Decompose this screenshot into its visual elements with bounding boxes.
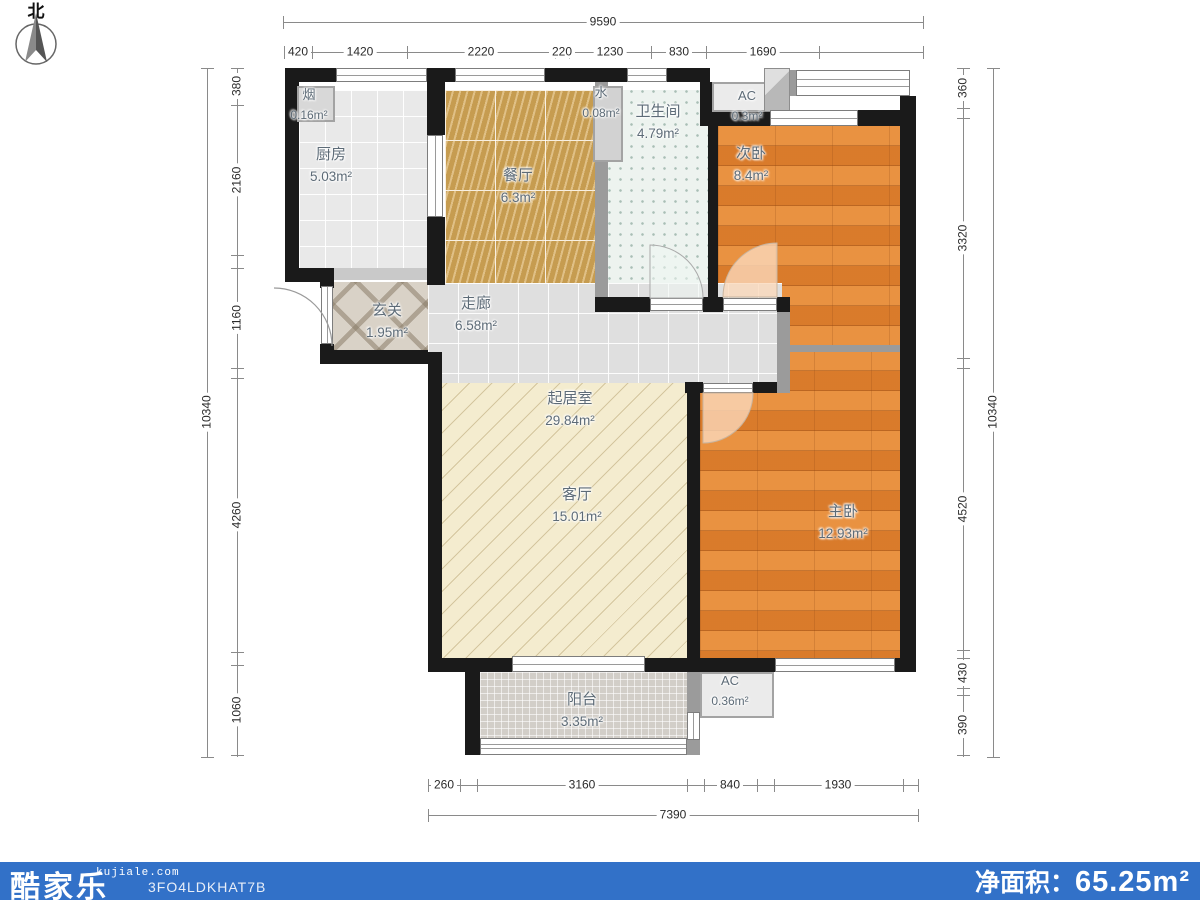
dim-label: 830 bbox=[666, 46, 692, 59]
dim-tick bbox=[231, 368, 244, 369]
dim-label: 4520 bbox=[957, 493, 970, 526]
dim-tick bbox=[957, 650, 970, 651]
dim-tick bbox=[987, 68, 1000, 69]
dim-tick bbox=[428, 809, 429, 822]
dim-tick bbox=[957, 755, 970, 756]
dim-label: 2160 bbox=[231, 164, 244, 197]
dim-tick bbox=[428, 779, 429, 792]
net-area-label: 净面积： bbox=[975, 863, 1075, 899]
dim-line bbox=[963, 68, 964, 757]
dim-tick bbox=[957, 108, 970, 109]
dim-label: 420 bbox=[285, 46, 311, 59]
dim-tick bbox=[687, 779, 688, 792]
dim-tick bbox=[957, 695, 970, 696]
dim-label: 1060 bbox=[231, 694, 244, 727]
dim-label: 360 bbox=[957, 75, 970, 101]
dim-label: 840 bbox=[717, 779, 743, 792]
dim-label: 10340 bbox=[987, 392, 1000, 431]
kujiale-logo: 酷家乐 bbox=[10, 862, 109, 900]
dim-tick bbox=[231, 68, 244, 69]
dim-tick bbox=[231, 378, 244, 379]
dim-tick bbox=[231, 755, 244, 756]
dim-label: 3320 bbox=[957, 222, 970, 255]
dim-tick bbox=[706, 46, 707, 59]
dim-label: 9590 bbox=[587, 16, 620, 29]
dim-tick bbox=[651, 46, 652, 59]
dim-label: 1930 bbox=[822, 779, 855, 792]
dim-tick bbox=[957, 68, 970, 69]
dim-tick bbox=[957, 688, 970, 689]
dim-label: 1160 bbox=[231, 302, 244, 334]
dim-tick bbox=[774, 779, 775, 792]
dim-tick bbox=[704, 779, 705, 792]
dim-tick bbox=[231, 268, 244, 269]
dim-tick bbox=[903, 779, 904, 792]
dim-label: 220 bbox=[549, 46, 575, 59]
dim-tick bbox=[231, 665, 244, 666]
dim-label: 390 bbox=[957, 712, 970, 738]
dim-tick bbox=[819, 46, 820, 59]
dim-tick bbox=[923, 16, 924, 29]
dim-tick bbox=[923, 46, 924, 59]
plan-code: 3FO4LDKHAT7B bbox=[148, 879, 266, 895]
floorplan-page: 北 bbox=[0, 0, 1200, 900]
dim-label: 10340 bbox=[201, 392, 214, 431]
footer-bar: 酷家乐 kujiale.com 3FO4LDKHAT7B 净面积： 65.25m… bbox=[0, 862, 1200, 900]
dim-label: 7390 bbox=[657, 809, 690, 822]
kujiale-domain: kujiale.com bbox=[96, 867, 180, 879]
dim-tick bbox=[957, 118, 970, 119]
dim-tick bbox=[201, 68, 214, 69]
dim-tick bbox=[460, 779, 461, 792]
dim-label: 260 bbox=[431, 779, 457, 792]
net-area-value: 65.25m² bbox=[1075, 866, 1190, 899]
dim-tick bbox=[201, 757, 214, 758]
dim-tick bbox=[477, 779, 478, 792]
dim-tick bbox=[231, 105, 244, 106]
dim-label: 4260 bbox=[231, 499, 244, 532]
dim-label: 1420 bbox=[344, 46, 377, 59]
dim-tick bbox=[757, 779, 758, 792]
dim-tick bbox=[987, 757, 1000, 758]
dim-tick bbox=[312, 46, 313, 59]
dim-label: 1230 bbox=[594, 46, 627, 59]
dim-tick bbox=[283, 16, 284, 29]
dim-tick bbox=[957, 358, 970, 359]
dim-tick bbox=[957, 368, 970, 369]
dim-label: 2220 bbox=[465, 46, 498, 59]
dimension-layer: 9590420142022202201230830169010340380216… bbox=[0, 0, 1200, 900]
dim-label: 380 bbox=[231, 73, 244, 99]
dim-tick bbox=[231, 255, 244, 256]
dim-tick bbox=[231, 652, 244, 653]
net-area: 净面积： 65.25m² bbox=[975, 863, 1190, 899]
dim-tick bbox=[918, 809, 919, 822]
dim-label: 1690 bbox=[747, 46, 780, 59]
dim-tick bbox=[918, 779, 919, 792]
dim-tick bbox=[407, 46, 408, 59]
dim-label: 430 bbox=[957, 660, 970, 686]
dim-label: 3160 bbox=[566, 779, 599, 792]
dim-tick bbox=[957, 658, 970, 659]
